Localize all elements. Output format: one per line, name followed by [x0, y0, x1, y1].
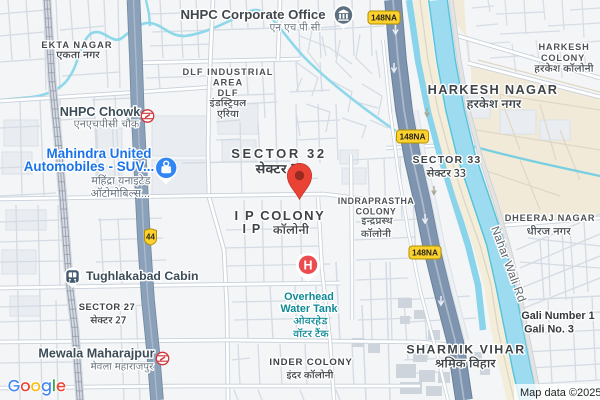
svg-text:INDRAPRASTHA: INDRAPRASTHA	[338, 196, 415, 206]
svg-text:SECTOR 33: SECTOR 33	[413, 154, 482, 166]
svg-text:Water Tank: Water Tank	[281, 303, 339, 315]
svg-text:COLONY: COLONY	[356, 207, 397, 217]
svg-text:EKTA NAGAR: EKTA NAGAR	[41, 40, 112, 50]
svg-text:DLF INDUSTRIAL: DLF INDUSTRIAL	[183, 67, 274, 77]
svg-text:NHPC Corporate Office: NHPC Corporate Office	[180, 7, 325, 22]
svg-text:I P: I P	[243, 222, 262, 236]
svg-text:SECTOR 27: SECTOR 27	[79, 301, 135, 312]
svg-text:148NA: 148NA	[371, 13, 397, 23]
svg-text:Map data ©2025: Map data ©2025	[520, 387, 600, 399]
svg-text:DLF: DLF	[217, 88, 238, 98]
svg-text:DHEERAJ NAGAR: DHEERAJ NAGAR	[505, 213, 596, 223]
svg-text:44: 44	[146, 233, 155, 242]
svg-text:Gali Number 1: Gali Number 1	[521, 310, 594, 322]
svg-text:HARKESH: HARKESH	[538, 42, 589, 52]
svg-text:I P COLONY: I P COLONY	[235, 208, 326, 223]
svg-text:148NA: 148NA	[399, 132, 425, 142]
svg-text:AREA: AREA	[213, 78, 243, 88]
svg-text:Overhead: Overhead	[284, 291, 334, 303]
svg-text:Gali No. 3: Gali No. 3	[524, 324, 574, 336]
svg-text:HARKESH NAGAR: HARKESH NAGAR	[428, 82, 559, 97]
svg-text:Tughlakabad Cabin: Tughlakabad Cabin	[86, 269, 199, 283]
svg-text:SHARMIK VIHAR: SHARMIK VIHAR	[406, 343, 525, 357]
svg-text:SECTOR 32: SECTOR 32	[231, 146, 326, 161]
svg-text:Automobiles - SUV...: Automobiles - SUV...	[24, 159, 154, 174]
svg-text:148NA: 148NA	[412, 248, 438, 258]
svg-text:INDER COLONY: INDER COLONY	[269, 357, 352, 368]
svg-text:H: H	[303, 258, 312, 272]
svg-text:Mewala Maharajpur: Mewala Maharajpur	[38, 347, 154, 361]
